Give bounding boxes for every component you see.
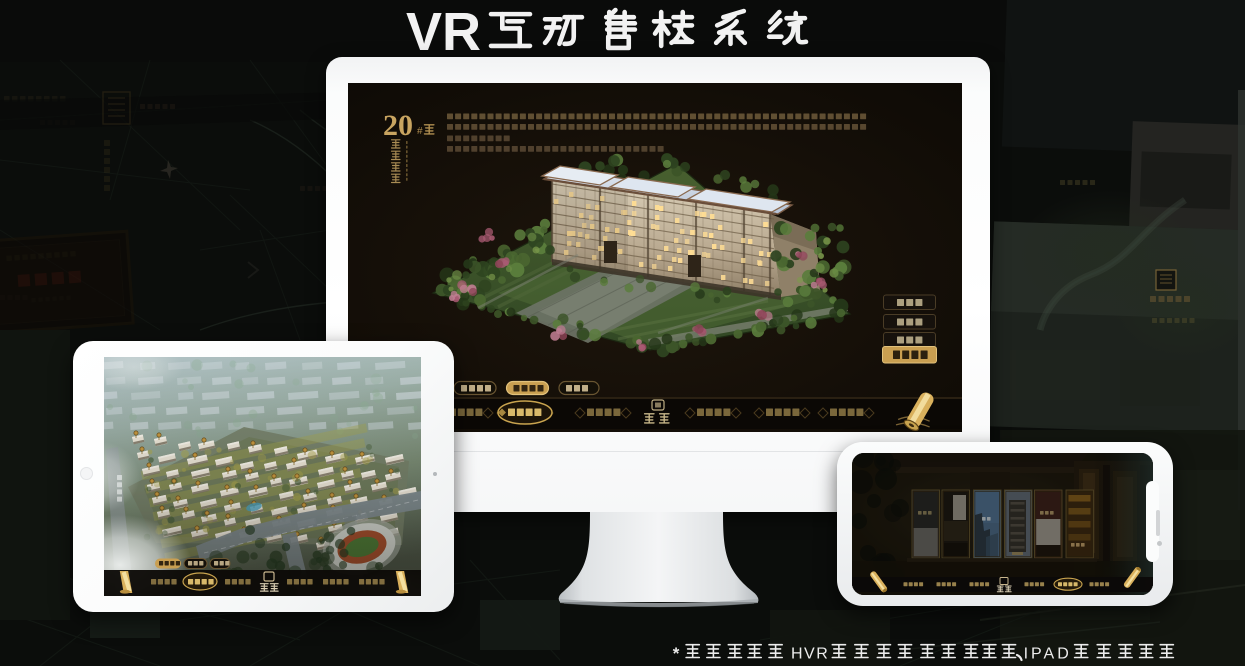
svg-text:VR: VR — [406, 2, 481, 62]
svg-text:*: * — [673, 644, 680, 663]
svg-text:#: # — [417, 126, 423, 137]
svg-text:IPAD: IPAD — [1024, 646, 1072, 663]
svg-text:HVR: HVR — [791, 646, 829, 663]
svg-text:20: 20 — [383, 109, 413, 142]
